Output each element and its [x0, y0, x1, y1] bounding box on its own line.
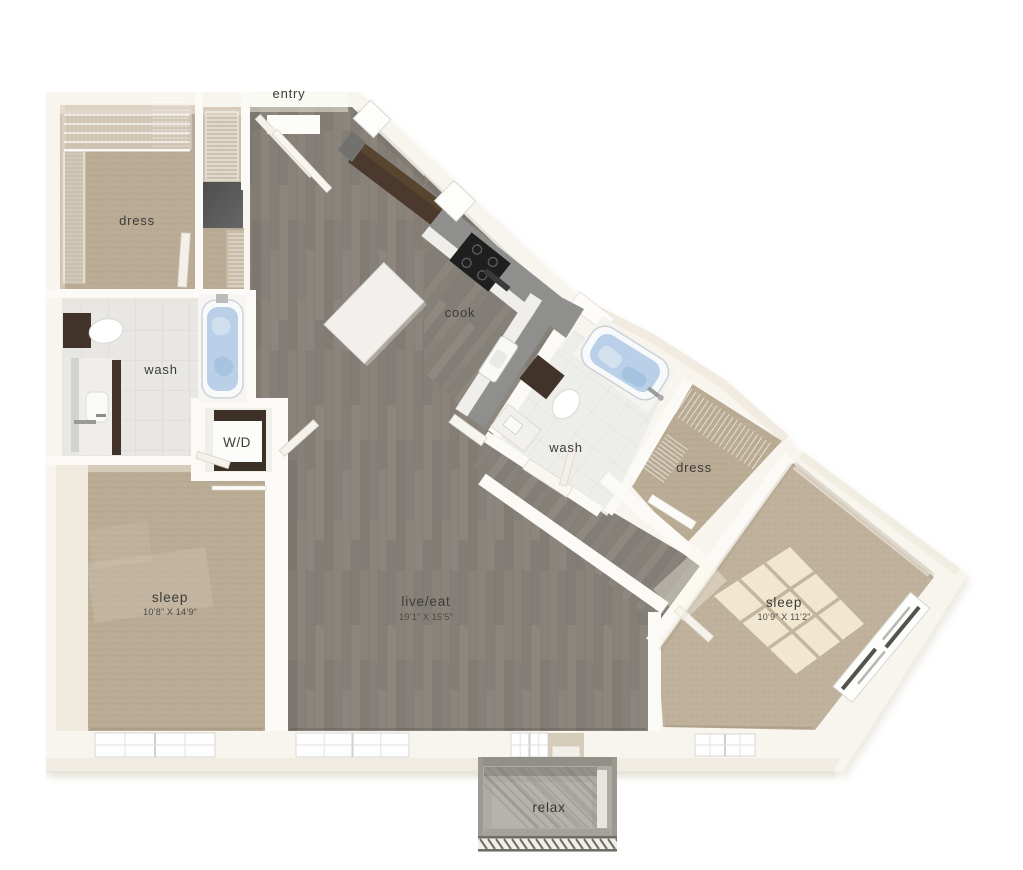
svg-text:sleep: sleep [152, 590, 188, 605]
svg-text:10’9” X 11’2”: 10’9” X 11’2” [758, 612, 811, 622]
svg-text:W/D: W/D [223, 435, 251, 450]
svg-text:wash: wash [143, 362, 178, 377]
svg-text:live/eat: live/eat [401, 594, 450, 609]
svg-text:wash: wash [548, 440, 583, 455]
svg-text:sleep: sleep [766, 595, 802, 610]
svg-text:dress: dress [119, 213, 155, 228]
svg-text:relax: relax [532, 800, 565, 815]
svg-text:cook: cook [445, 305, 476, 320]
svg-text:dress: dress [676, 460, 712, 475]
svg-text:19’1” X 15’5”: 19’1” X 15’5” [399, 612, 453, 622]
svg-text:10’8” X 14’9”: 10’8” X 14’9” [143, 607, 197, 617]
svg-text:entry: entry [273, 86, 306, 101]
